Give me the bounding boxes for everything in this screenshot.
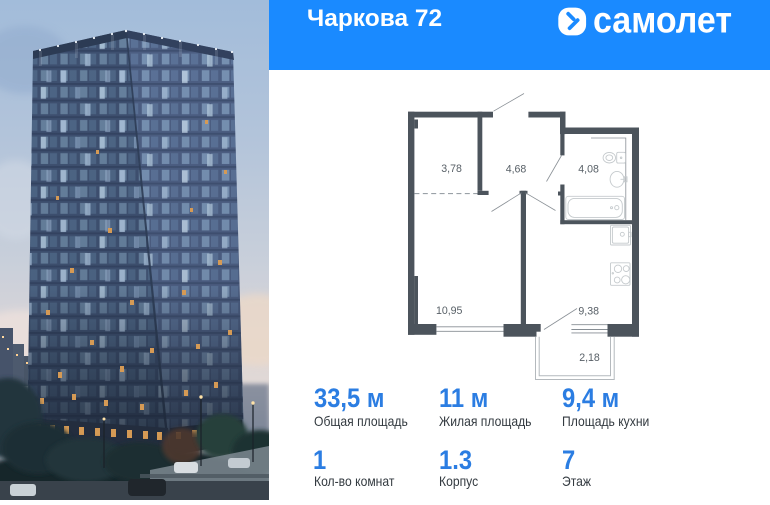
svg-text:10,95: 10,95 <box>436 305 463 317</box>
svg-text:4,68: 4,68 <box>506 164 527 176</box>
svg-text:4,08: 4,08 <box>578 164 599 176</box>
svg-text:самолет: самолет <box>593 6 732 40</box>
svg-text:2,18: 2,18 <box>579 352 600 364</box>
svg-text:9,38: 9,38 <box>578 305 599 317</box>
svg-text:3,78: 3,78 <box>441 163 462 175</box>
